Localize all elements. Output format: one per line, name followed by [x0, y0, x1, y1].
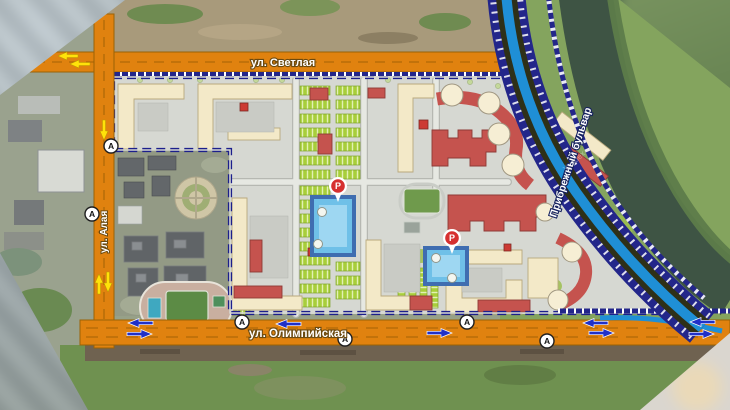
bus-stop-icon[interactable]: А — [85, 207, 99, 221]
street-alaya-road — [94, 14, 114, 348]
svg-text:P: P — [335, 181, 341, 191]
map-viewport: А А А А А А — [0, 0, 730, 410]
existing-buildings-area — [113, 150, 232, 332]
svg-text:А: А — [108, 141, 114, 151]
svg-text:P: P — [449, 233, 455, 243]
svg-text:А: А — [239, 317, 245, 327]
parking-structure — [310, 195, 356, 257]
svg-text:А: А — [464, 317, 470, 327]
satellite-map[interactable]: А А А А А А — [0, 0, 730, 410]
street-label-alaya: ул. Алая — [99, 211, 110, 253]
street-label-olimpiyskaya: ул. Олимпийская — [249, 328, 347, 340]
street-label-svetlaya: ул. Светлая — [251, 57, 315, 69]
svg-text:А: А — [89, 209, 95, 219]
svg-text:А: А — [544, 336, 550, 346]
bus-stop-icon[interactable]: А — [460, 315, 474, 329]
bus-stop-icon[interactable]: А — [235, 315, 249, 329]
bus-stop-icon[interactable]: А — [104, 139, 118, 153]
bus-stop-icon[interactable]: А — [540, 334, 554, 348]
circular-garden — [175, 177, 217, 219]
parking-structure — [423, 246, 469, 286]
